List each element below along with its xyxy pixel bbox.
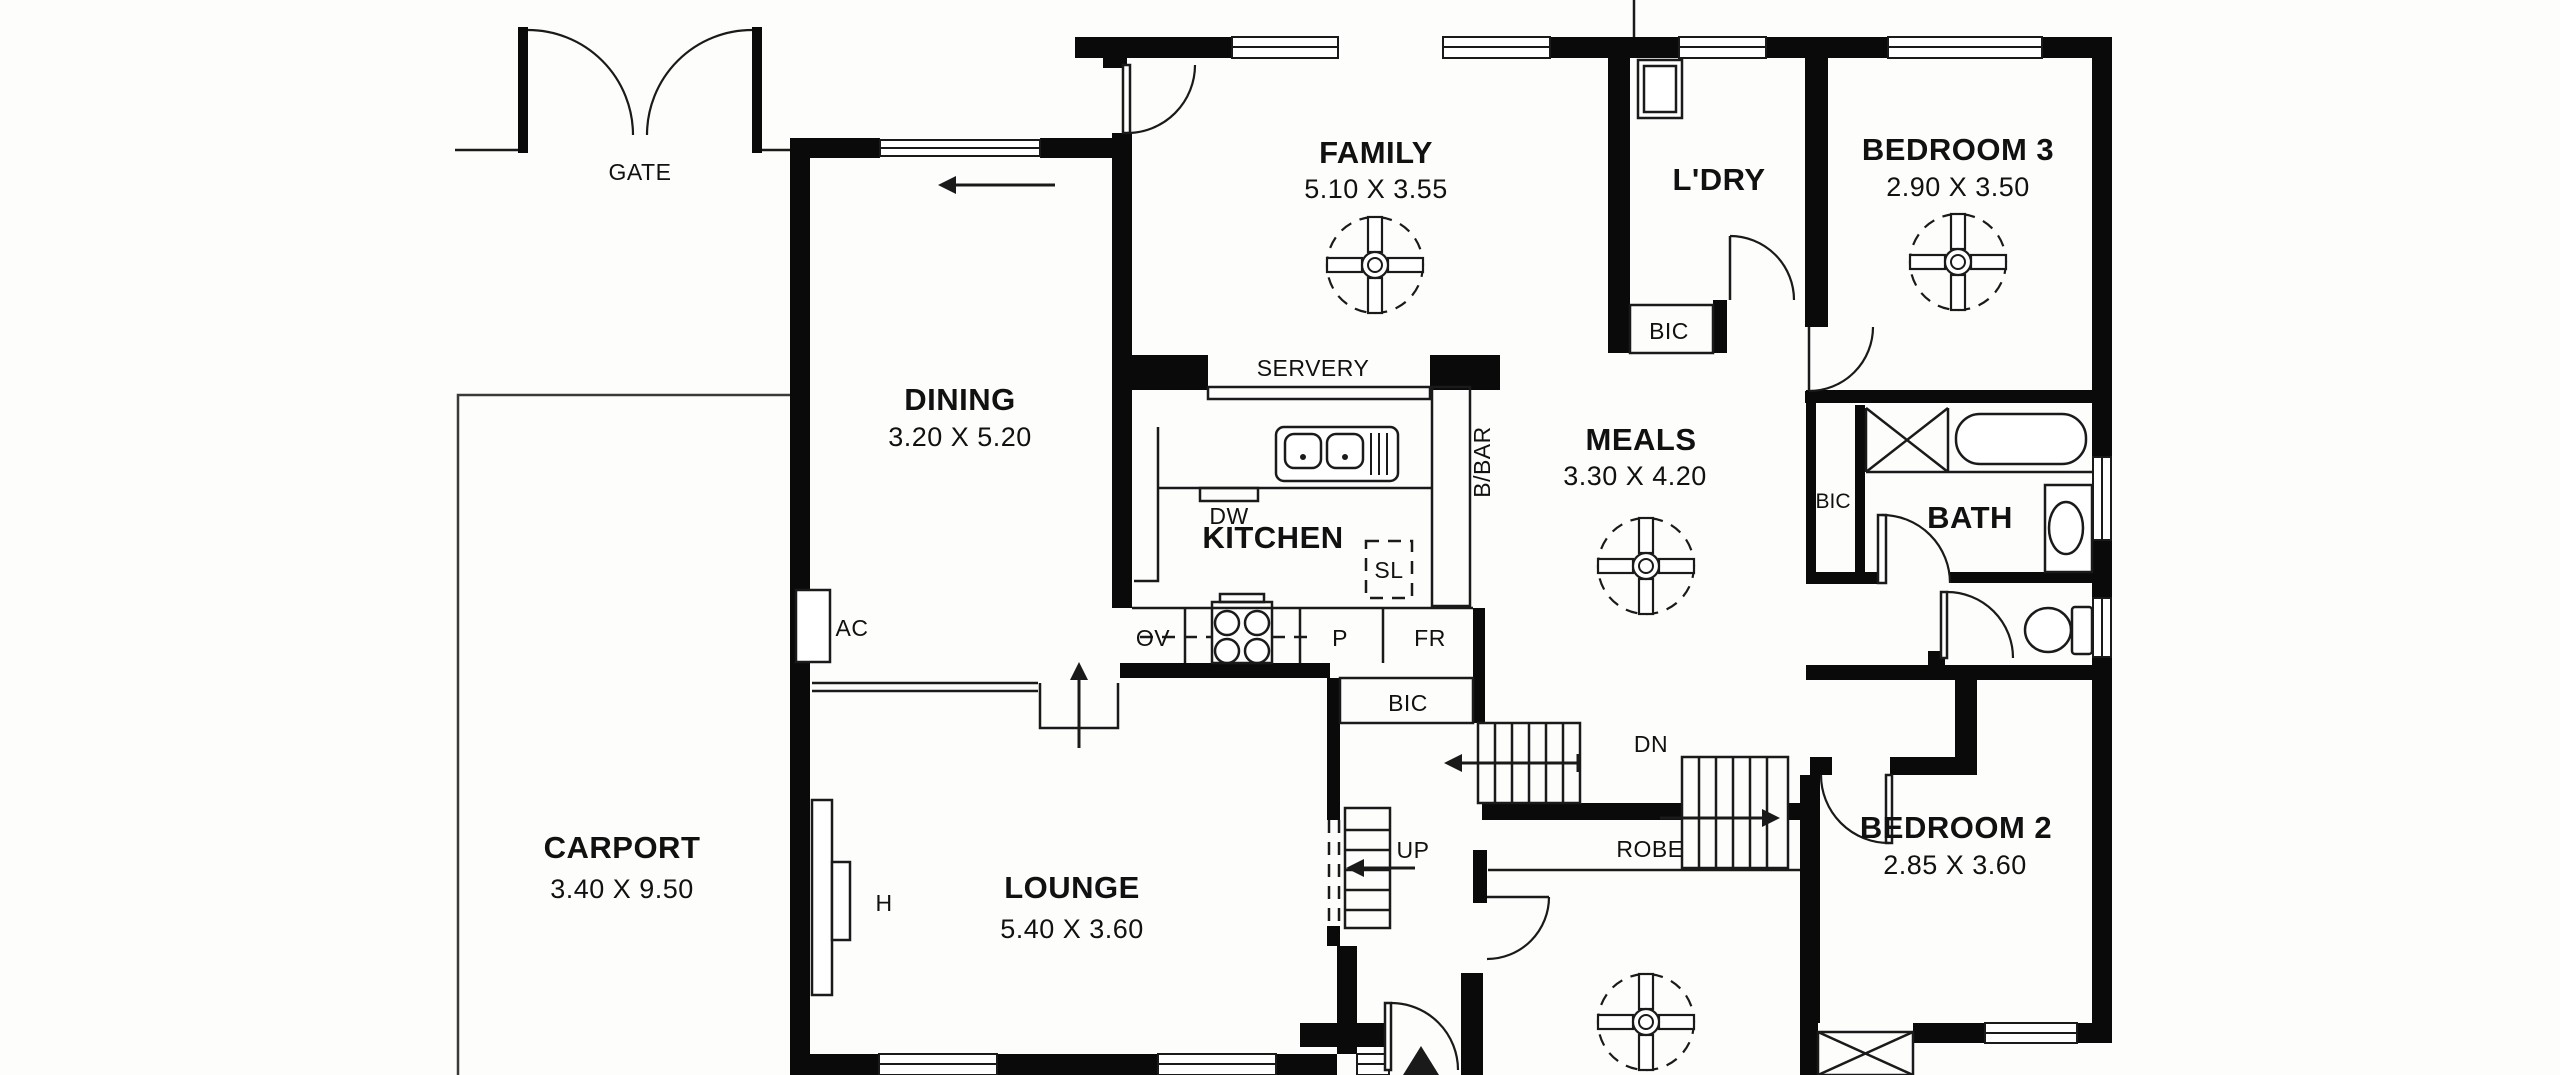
lounge-dims: 5.40 X 3.60 xyxy=(1000,914,1144,944)
sl-label: SL xyxy=(1374,557,1403,583)
vanity xyxy=(2045,485,2092,572)
heater-label: H xyxy=(875,890,892,916)
dining-name: DINING xyxy=(904,382,1016,417)
ac-unit xyxy=(796,590,830,662)
bbar-label: B/BAR xyxy=(1469,426,1495,498)
window-wc xyxy=(2093,598,2111,657)
carport-dims: 3.40 X 9.50 xyxy=(550,874,694,904)
window-lounge-1 xyxy=(879,1054,997,1075)
carport-name: CARPORT xyxy=(544,830,701,865)
dishwasher-label: DW xyxy=(1209,503,1248,529)
laundry-bic-label: BIC xyxy=(1649,318,1689,344)
window-bath-1 xyxy=(2093,457,2111,540)
fridge-label: FR xyxy=(1414,625,1446,651)
bedroom2-dims: 2.85 X 3.60 xyxy=(1883,850,2027,880)
bedroom2-name: BEDROOM 2 xyxy=(1860,810,2052,845)
hall-bic-label: BIC xyxy=(1388,690,1428,716)
floor-plan-drawing: GATE FAMILY 5.10 X 3.55 DINING 3.20 X 5.… xyxy=(0,0,2560,1075)
window-lounge-2 xyxy=(1158,1054,1276,1075)
laundry-name: L'DRY xyxy=(1672,162,1765,197)
linen-bic-label: BIC xyxy=(1815,490,1850,513)
oven-label: OV xyxy=(1136,625,1170,651)
window-bedroom2 xyxy=(1985,1023,2077,1043)
bathtub xyxy=(1956,414,2086,464)
toilet xyxy=(2025,607,2092,654)
sliding-door-dining xyxy=(880,140,1040,156)
bath-name: BATH xyxy=(1927,500,2013,535)
lounge-name: LOUNGE xyxy=(1004,870,1140,905)
window-bedroom3 xyxy=(1888,37,2042,58)
dn-label: DN xyxy=(1634,731,1668,757)
bedroom3-dims: 2.90 X 3.50 xyxy=(1886,172,2030,202)
floor-plan-page: GATE FAMILY 5.10 X 3.55 DINING 3.20 X 5.… xyxy=(0,0,2560,1075)
meals-dims: 3.30 X 4.20 xyxy=(1563,461,1707,491)
window-laundry xyxy=(1679,37,1766,58)
kitchen-sink xyxy=(1276,427,1398,481)
bedroom3-name: BEDROOM 3 xyxy=(1862,132,2054,167)
laundry-trough xyxy=(1638,60,1682,118)
up-label: UP xyxy=(1397,837,1430,863)
meals-name: MEALS xyxy=(1586,422,1697,457)
window-family-2 xyxy=(1443,37,1550,58)
pantry-label: P xyxy=(1332,625,1348,651)
window-family-1 xyxy=(1232,37,1338,58)
ac-label: AC xyxy=(836,615,869,641)
servery-label: SERVERY xyxy=(1257,355,1370,381)
family-name: FAMILY xyxy=(1319,135,1433,170)
gate-label: GATE xyxy=(609,159,672,185)
dining-dims: 3.20 X 5.20 xyxy=(888,422,1032,452)
robe-label: ROBE xyxy=(1616,836,1683,862)
family-dims: 5.10 X 3.55 xyxy=(1304,174,1448,204)
